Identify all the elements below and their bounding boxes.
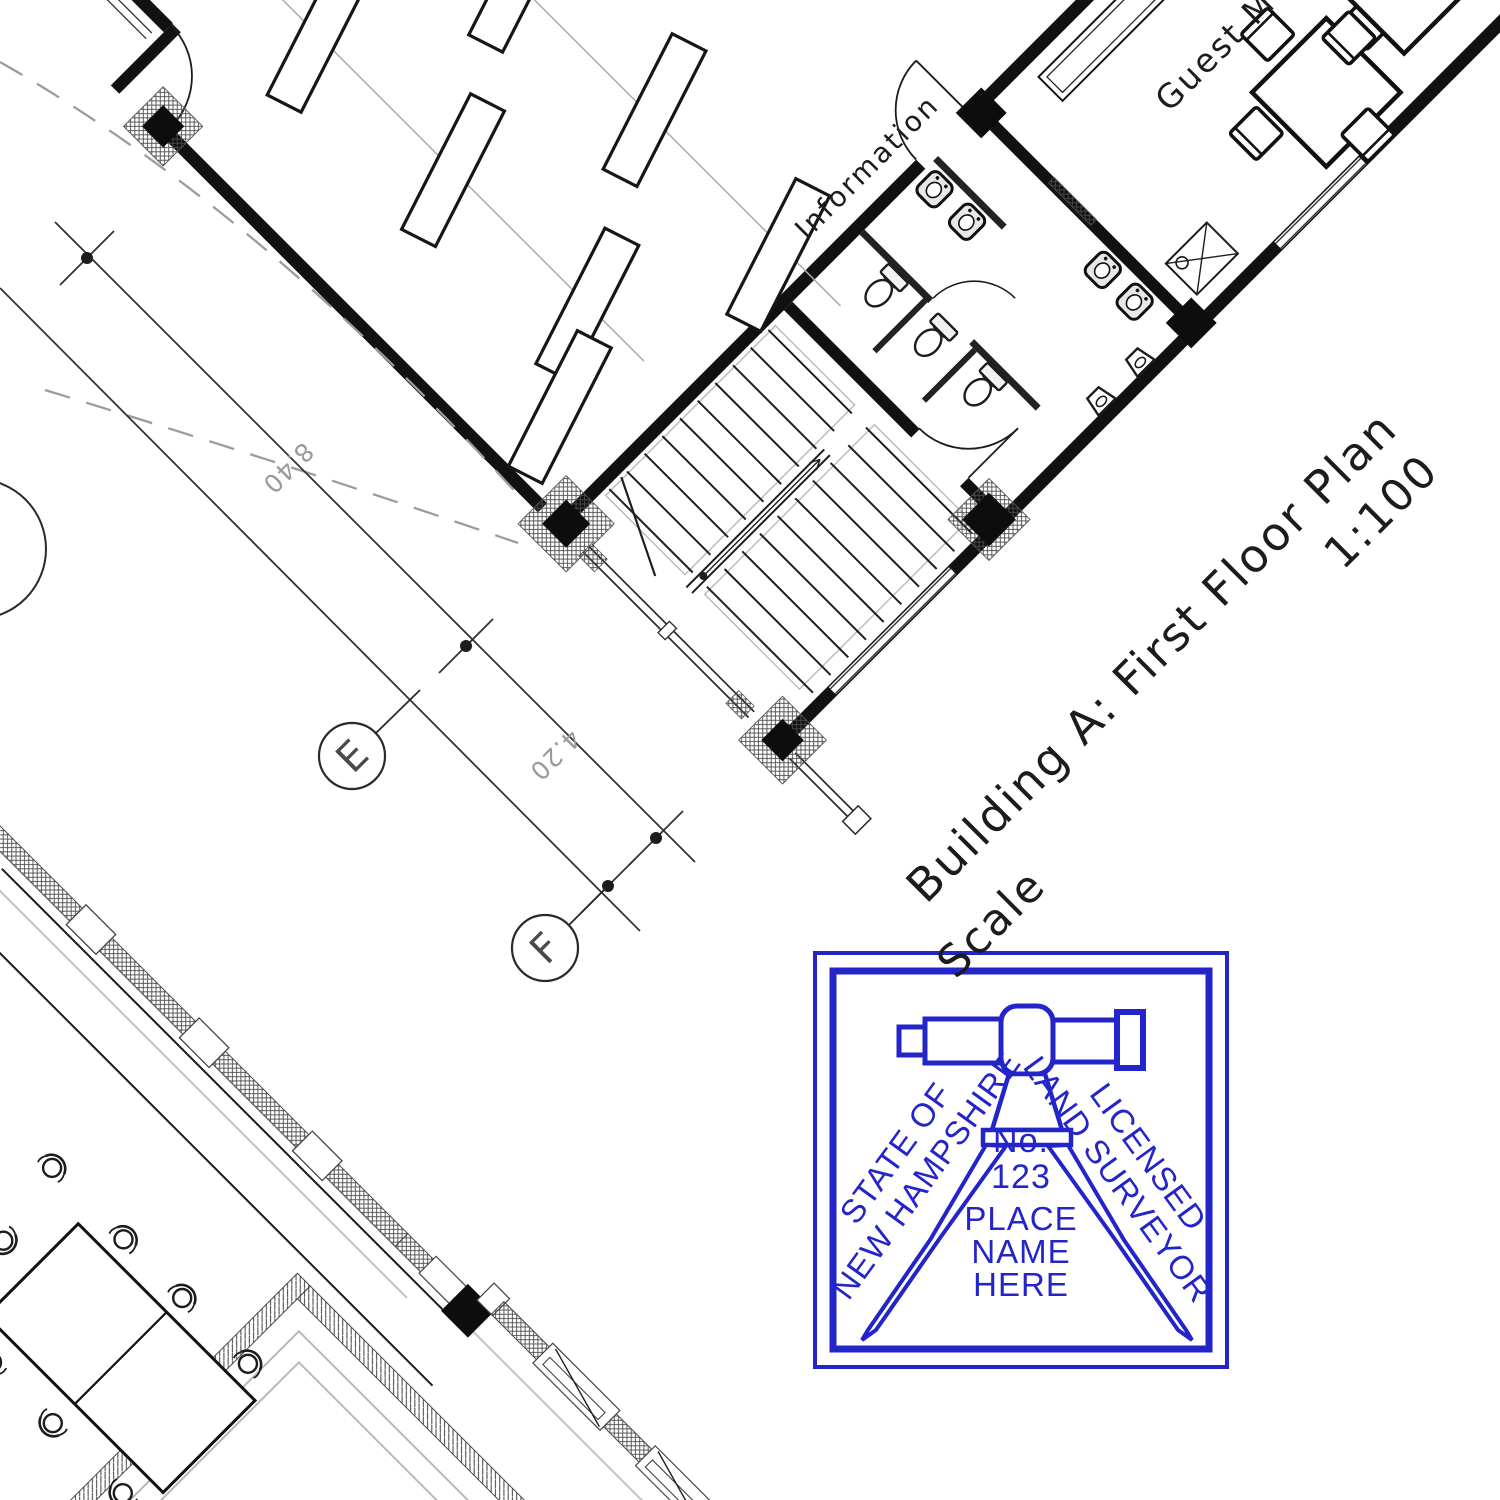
toilet-icon [908, 313, 958, 363]
desk [469, 0, 572, 52]
sliding-window [533, 1343, 620, 1430]
sliding-window [635, 1446, 722, 1500]
dashed-swing-path [0, 62, 520, 497]
grid-line [0, 288, 640, 931]
dimension-840-label: 8.40 [257, 437, 320, 500]
terrace-dining [0, 1148, 279, 1500]
surveyor-stamp: STATE OF NEW HAMPSHIRE LICENSED LAND SUR… [794, 953, 1251, 1367]
stair-treads-lower [707, 428, 972, 693]
chair-icon [165, 1278, 201, 1314]
structural-columns [122, 0, 1230, 786]
chair-icon [0, 1224, 23, 1260]
curtain-wall [579, 544, 757, 722]
chair-icon [0, 1346, 9, 1382]
building-a-plan: Guest Me Information [0, 0, 1500, 848]
dimension-420-label: 4.20 [524, 724, 587, 787]
stamp-name-line2: NAME [971, 1233, 1070, 1270]
stamp-no-label: No. [993, 1122, 1049, 1160]
plan-title: Building A: First Floor Plan [896, 401, 1408, 913]
rotated-plan: Guest Me Information [0, 0, 1500, 1500]
terrace-wing [0, 791, 741, 1500]
stamp-no-value: 123 [991, 1158, 1051, 1196]
wall [111, 24, 181, 94]
wall [162, 127, 547, 512]
chair-icon [35, 1148, 71, 1184]
chair-icon [107, 1220, 143, 1256]
grid-bubble-clipped [0, 479, 46, 619]
desk [402, 94, 505, 247]
office-desks [135, 0, 901, 552]
floorplan-canvas: Guest Me Information [0, 0, 1500, 1500]
floorplan-page: Guest Me Information [0, 0, 1500, 1500]
desk [267, 0, 370, 112]
chair-icon [33, 1406, 69, 1442]
stamp-name-line3: HERE [973, 1266, 1069, 1303]
stamp-name-line1: PLACE [964, 1200, 1077, 1237]
stairs [589, 324, 978, 713]
desk [603, 34, 706, 187]
